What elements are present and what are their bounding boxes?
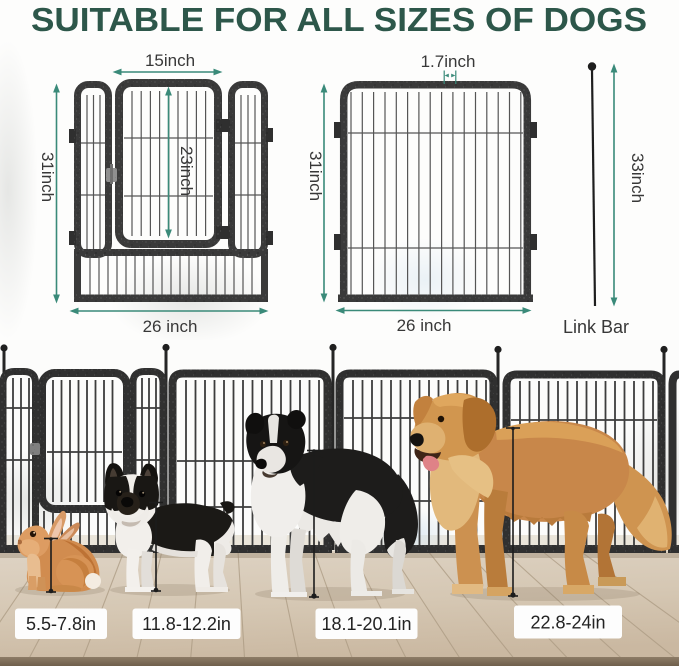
svg-text:33inch: 33inch <box>628 153 647 203</box>
svg-text:23inch: 23inch <box>177 146 196 196</box>
svg-text:15inch: 15inch <box>145 51 195 70</box>
svg-text:11.8-12.2in: 11.8-12.2in <box>142 614 231 634</box>
svg-text:26 inch: 26 inch <box>143 317 198 336</box>
svg-text:26 inch: 26 inch <box>397 316 452 335</box>
svg-text:5.5-7.8in: 5.5-7.8in <box>26 614 96 634</box>
svg-text:1.7inch: 1.7inch <box>421 52 476 71</box>
svg-text:31inch: 31inch <box>38 152 57 202</box>
svg-text:SUITABLE FOR ALL SIZES OF DOGS: SUITABLE FOR ALL SIZES OF DOGS <box>31 1 647 38</box>
svg-text:31inch: 31inch <box>306 151 325 201</box>
svg-text:18.1-20.1in: 18.1-20.1in <box>321 614 411 634</box>
svg-text:22.8-24in: 22.8-24in <box>530 613 605 633</box>
svg-text:Link Bar: Link Bar <box>563 317 629 337</box>
